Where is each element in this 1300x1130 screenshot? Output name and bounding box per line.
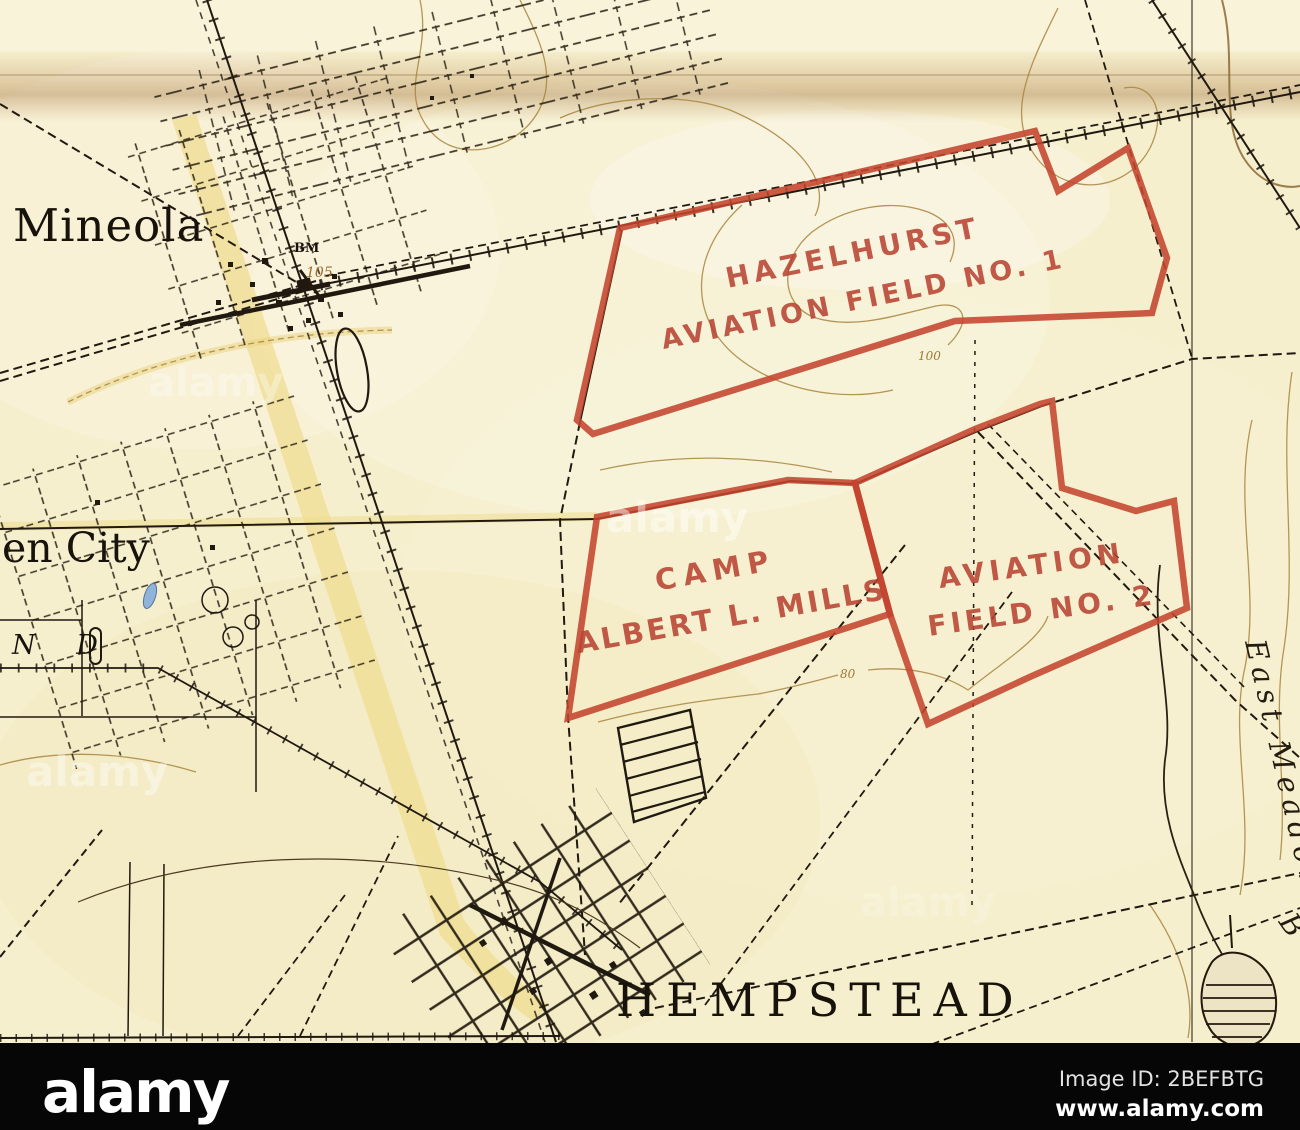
label-nd: N D [11,630,114,661]
alamy-watermark: alamy [148,360,283,406]
label-garden-city: en City [2,524,151,572]
image-id-text: Image ID: 2BEFBTG [1059,1067,1264,1091]
alamy-watermark: alamy [606,493,748,542]
alamy-watermark: alamy [860,880,995,926]
map-canvas: HAZELHURST AVIATION FIELD NO. 1 CAMP ALB… [0,0,1300,1130]
alamy-logo: alamy [42,1058,230,1126]
benchmark-elevation: 105 [306,265,333,281]
alamy-stock-photo-frame: HAZELHURST AVIATION FIELD NO. 1 CAMP ALB… [0,0,1300,1130]
website-text: www.alamy.com [1055,1096,1264,1122]
contour-label-80: 80 [840,667,856,681]
label-hempstead: HEMPSTEAD [616,973,1024,1027]
alamy-watermark: alamy [26,747,168,796]
contour-label-100: 100 [918,349,941,363]
footer-bar: alamy Image ID: 2BEFBTG www.alamy.com [0,1043,1300,1130]
label-mineola: Mineola [13,199,204,252]
benchmark-bm: BM [294,241,319,256]
